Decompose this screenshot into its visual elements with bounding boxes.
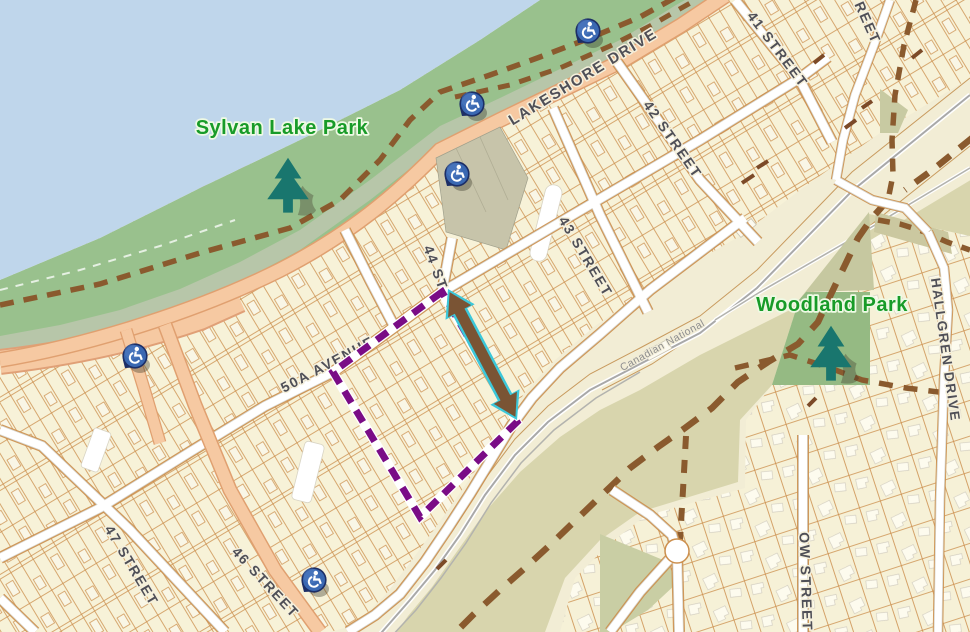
svg-text:Sylvan Lake Park: Sylvan Lake Park bbox=[196, 117, 369, 139]
svg-text:Woodland Park: Woodland Park bbox=[756, 294, 908, 316]
